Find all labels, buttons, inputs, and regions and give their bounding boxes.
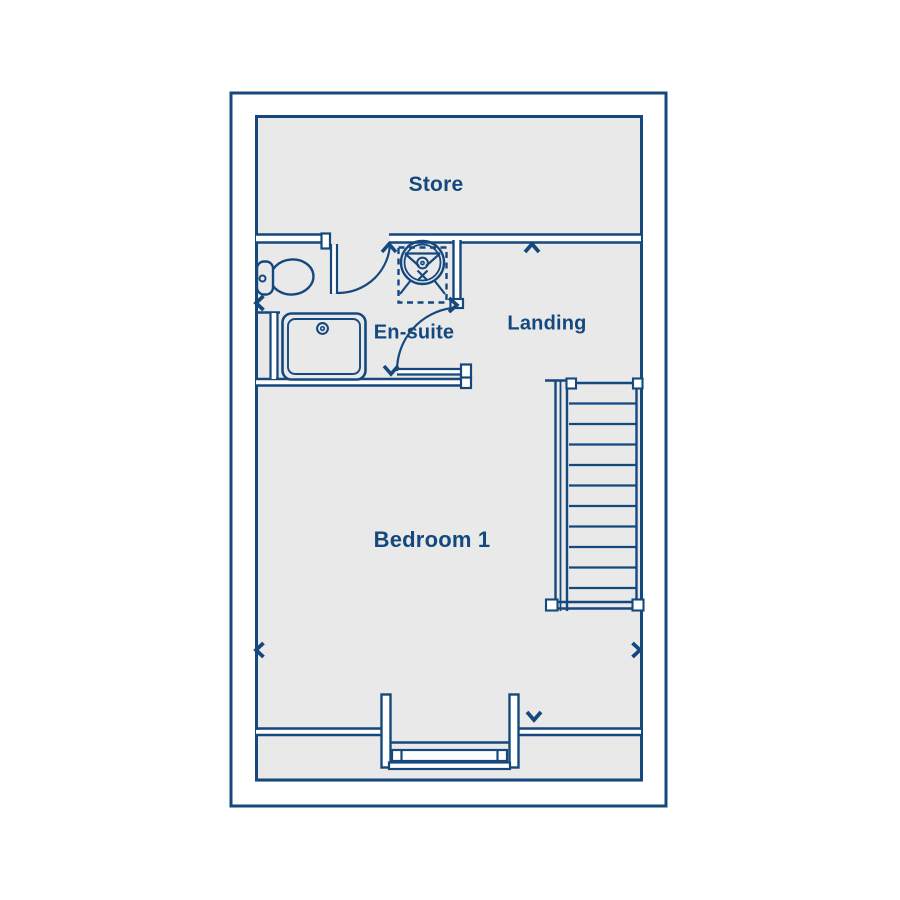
room-label-landing: Landing [507, 313, 586, 336]
room-label-ensuite: En-suite [374, 322, 455, 345]
floor-area [255, 115, 643, 782]
newel-post [633, 379, 643, 389]
newel-post [567, 379, 577, 389]
newel-post [546, 600, 558, 611]
ensuite-landing-wall [451, 240, 464, 308]
room-label-bedroom1: Bedroom 1 [374, 527, 491, 553]
floorplan-drawing [0, 0, 900, 900]
toilet-icon [257, 258, 315, 297]
dormer-post [382, 695, 391, 768]
door-jamb [461, 365, 471, 378]
room-label-store: Store [409, 173, 464, 197]
newel-post [633, 600, 644, 611]
dormer-post [510, 695, 519, 768]
door-jamb [461, 377, 471, 388]
floorplan-page: Store En-suite Landing Bedroom 1 [0, 0, 900, 900]
door-jamb [322, 234, 331, 249]
shower-tray-icon [283, 314, 366, 380]
